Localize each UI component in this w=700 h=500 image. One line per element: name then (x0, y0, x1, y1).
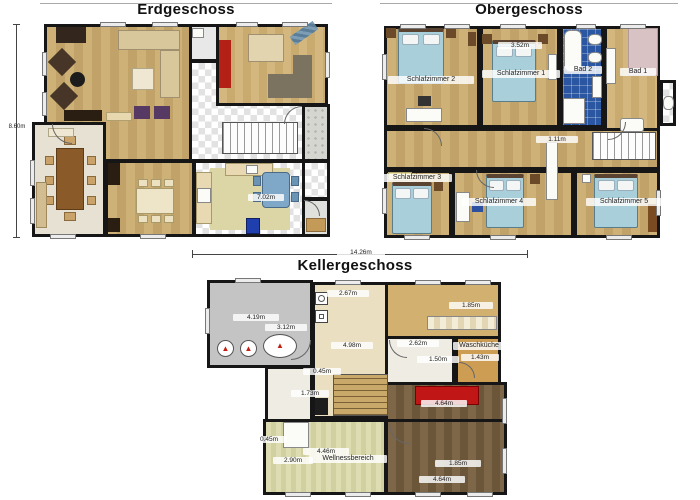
shower (563, 98, 585, 124)
boiler-icon: ▲ (240, 340, 257, 357)
side-table (70, 72, 85, 87)
window (576, 24, 596, 29)
hallway-dimension-label: 1.11m (536, 136, 578, 143)
window (30, 160, 35, 186)
desk (456, 192, 470, 222)
window (382, 54, 387, 80)
kitchen-table (262, 172, 290, 208)
utility-height-label: 4.98m (331, 342, 373, 349)
desk (406, 108, 442, 122)
window (382, 188, 387, 214)
nightstand (482, 34, 492, 44)
toilet (588, 34, 602, 45)
shower (283, 422, 309, 448)
window (415, 280, 441, 285)
stove (315, 398, 328, 415)
sofa (160, 50, 180, 98)
chair (87, 196, 96, 205)
chair (151, 179, 161, 187)
sink (192, 28, 204, 38)
eg-height-dimension-line (16, 24, 17, 238)
window (467, 492, 493, 497)
dark1-dim-label: 4.64m (421, 400, 467, 407)
kg-dim-tick-right (527, 250, 528, 258)
eg-height-dimension-label: 8.60m (0, 124, 34, 131)
og-top-dimension-line (380, 3, 678, 4)
white-room-height-label: 1.50m (417, 356, 459, 363)
window (282, 22, 308, 27)
flame-icon: ▲ (222, 345, 230, 353)
dark2-dim-b-label: 4.64m (419, 476, 465, 483)
window (345, 492, 371, 497)
chair (138, 179, 148, 187)
bedroom-1-dimension-label: 3.52m (498, 42, 542, 49)
chair (87, 156, 96, 165)
wellness-label: Wellnessbereich (309, 455, 387, 463)
storage-room-tan (385, 282, 501, 339)
flame-icon: ▲ (245, 345, 253, 353)
window (50, 234, 76, 239)
cabinet (606, 48, 616, 84)
toilet (663, 96, 674, 110)
coffee-table (132, 68, 154, 90)
gray-sofa (268, 74, 312, 98)
nightstand (530, 174, 540, 184)
bathroom-1-label: Bad 1 (620, 68, 656, 76)
dark2-dim-a-label: 1.85m (435, 460, 481, 467)
cabinet (108, 163, 120, 185)
kg-total-dimension-label: 14.26m (337, 249, 385, 256)
stairs (592, 132, 656, 160)
bedroom-5-label: Schlafzimmer 5 (586, 198, 662, 206)
door-mat (306, 218, 326, 232)
window (100, 22, 126, 27)
boiler-width-label: 4.19m (233, 314, 279, 321)
eg-top-dimension-line (40, 3, 332, 4)
window (502, 398, 507, 424)
furnace-icon: ▲ (263, 334, 297, 358)
eg-kitchen-dimension-label: 7.02m (248, 194, 284, 201)
window (490, 235, 516, 240)
cabinet (108, 218, 120, 232)
boiler-height-label: 3.12m (265, 324, 307, 331)
chair (418, 96, 431, 106)
kg-dim-tick-left (192, 250, 193, 258)
bed (392, 182, 432, 234)
boiler-icon: ▲ (217, 340, 234, 357)
window (285, 492, 311, 497)
sofa (118, 30, 180, 50)
window (325, 52, 330, 78)
window (235, 278, 261, 283)
stove (197, 188, 211, 203)
red-sofa (219, 40, 231, 88)
nightstand (434, 182, 443, 191)
nightstand (446, 28, 456, 38)
window (140, 234, 166, 239)
purple-chair (154, 106, 170, 119)
chair (45, 156, 54, 165)
bedroom-2-label: Schlafzimmer 2 (388, 76, 474, 84)
dryer-icon (315, 310, 328, 323)
rear-entry (302, 160, 330, 200)
shelf (468, 32, 476, 46)
nightstand (582, 174, 591, 183)
window (30, 198, 35, 224)
stone-room (302, 104, 330, 162)
chair (138, 215, 148, 223)
wellness-dim-b-label: 2.90m (273, 457, 313, 464)
laundry-room-label: Waschküche (453, 342, 505, 350)
bedroom-4-label: Schlafzimmer 4 (462, 198, 536, 206)
stairs (333, 374, 388, 416)
white-room-width-label: 2.62m (397, 340, 439, 347)
bin (246, 218, 260, 234)
bathroom-2-label: Bad 2 (564, 66, 602, 74)
toilet (588, 52, 602, 63)
laundry-dim-label: 1.43m (461, 354, 499, 361)
bench (427, 316, 497, 330)
sink (246, 165, 258, 174)
chair (291, 176, 299, 186)
kg-plan: ▲ ▲ ▲ 4.19m 3.12m 2.67m 4.98m 0.45m 1.73… (205, 278, 510, 497)
window (444, 24, 470, 29)
flame-icon: ▲ (276, 342, 284, 350)
window (205, 308, 210, 334)
window (415, 492, 441, 497)
sink (592, 76, 602, 98)
sideboard (106, 112, 132, 121)
window (620, 24, 646, 29)
tv-board (64, 110, 102, 121)
window (502, 448, 507, 474)
window (404, 235, 430, 240)
eg-dim-tick-bottom (13, 237, 20, 238)
window (400, 24, 426, 29)
tan-room-dim-label: 1.85m (449, 302, 493, 309)
window (42, 52, 47, 76)
bench (36, 182, 47, 228)
stairs-dim-a-label: 0.45m (303, 368, 341, 375)
window (335, 280, 361, 285)
eg-plan: 7.02m (40, 22, 332, 240)
og-plan: Schlafzimmer 2 3.52m Schlafzimmer 1 Bad … (380, 24, 678, 240)
chair (291, 192, 299, 202)
armchair (56, 27, 86, 43)
window (465, 280, 491, 285)
stairs (222, 122, 298, 154)
utility-width-label: 2.67m (327, 290, 369, 297)
bedroom-1-label: Schlafzimmer 1 (482, 70, 560, 78)
daybed (248, 34, 284, 62)
stairs-dim-b-label: 1.73m (291, 390, 329, 397)
dining-table (56, 148, 84, 210)
floorplan-canvas: Erdgeschoss 8.60m (0, 0, 700, 500)
wellness-dim-c-label: 0.45m (251, 436, 287, 443)
chair (151, 215, 161, 223)
dining-table (136, 188, 174, 214)
window (606, 235, 632, 240)
window (152, 22, 178, 27)
chair (253, 176, 261, 186)
nightstand (386, 28, 396, 38)
kg-title: Kellergeschoss (230, 257, 480, 274)
window (236, 22, 258, 27)
chair (87, 176, 96, 185)
window (42, 92, 47, 116)
wardrobe (546, 142, 558, 200)
eg-dim-tick-top (13, 24, 20, 25)
bedroom-3-label: Schlafzimmer 3 (382, 174, 452, 182)
chair (64, 212, 76, 221)
chair (164, 179, 174, 187)
purple-chair (134, 106, 150, 119)
window (500, 24, 526, 29)
chair (164, 215, 174, 223)
